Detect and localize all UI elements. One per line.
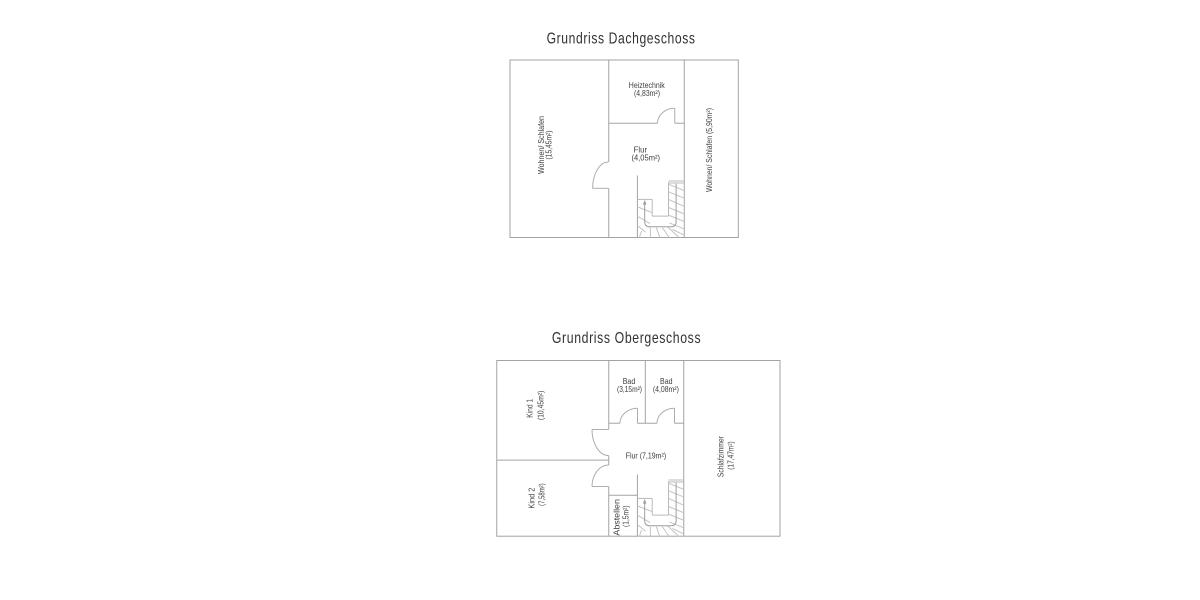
svg-text:(4,08m²): (4,08m²)	[653, 385, 679, 394]
svg-text:(4,83m²): (4,83m²)	[634, 89, 660, 98]
svg-text:(7,58m²): (7,58m²)	[537, 483, 546, 506]
svg-text:Grundriss Obergeschoss: Grundriss Obergeschoss	[552, 330, 701, 347]
svg-text:Wohnen/ Schlafen (5,90m²): Wohnen/ Schlafen (5,90m²)	[705, 108, 714, 192]
svg-text:(17,47m²): (17,47m²)	[727, 441, 736, 470]
svg-text:Kind 2: Kind 2	[528, 487, 537, 509]
svg-text:Grundriss Dachgeschoss: Grundriss Dachgeschoss	[547, 31, 696, 48]
svg-text:Kind 1: Kind 1	[525, 398, 534, 417]
svg-text:(1,5m²): (1,5m²)	[621, 505, 630, 527]
svg-text:Flur (7,19m²): Flur (7,19m²)	[626, 451, 667, 460]
svg-text:(3,15m²): (3,15m²)	[617, 385, 642, 394]
svg-text:Schlafzimmer: Schlafzimmer	[717, 436, 726, 477]
svg-text:(15,45m²): (15,45m²)	[544, 130, 553, 159]
svg-text:(10,45m²): (10,45m²)	[537, 390, 546, 420]
svg-text:(4,05m²): (4,05m²)	[632, 153, 661, 162]
